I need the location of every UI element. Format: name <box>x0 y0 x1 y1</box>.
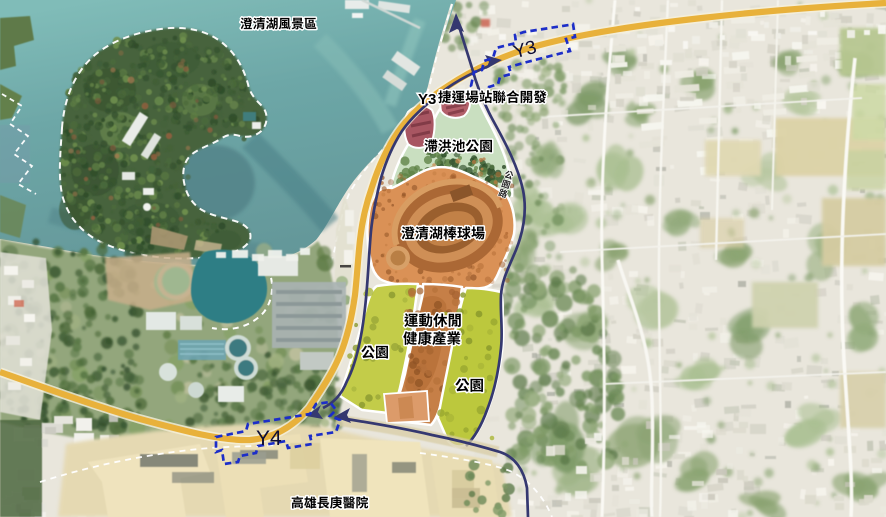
svg-text:Y3: Y3 <box>418 91 436 108</box>
svg-text:Y4: Y4 <box>256 427 282 450</box>
